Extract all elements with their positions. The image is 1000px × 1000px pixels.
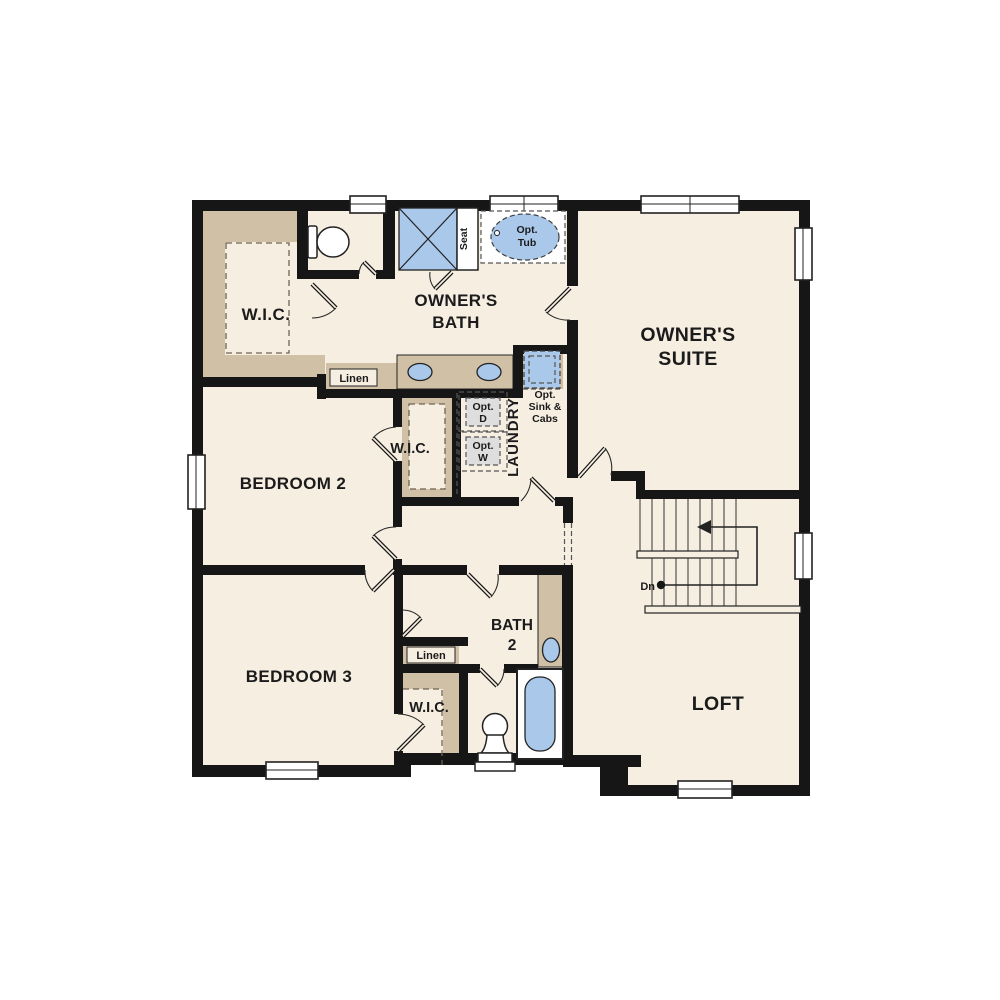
- window: [350, 196, 386, 213]
- room-label-bedroom3-wic: W.I.C.: [409, 700, 448, 716]
- label-opt-tub-1: Opt.: [517, 224, 538, 236]
- label-stairs-down: Dn: [640, 581, 655, 593]
- stair-bottom-edge: [645, 606, 801, 613]
- window: [795, 228, 812, 280]
- floor-plan-canvas: W.I.C. OWNER'S BATH Seat Opt. Tub OWNER'…: [0, 0, 1000, 1000]
- bath2-sink-icon: [543, 638, 560, 662]
- floor-plan-page: W.I.C. OWNER'S BATH Seat Opt. Tub OWNER'…: [0, 0, 1000, 1000]
- room-label-owners-suite-2: SUITE: [658, 348, 717, 370]
- window: [641, 196, 739, 213]
- room-label-owners-wic: W.I.C.: [242, 305, 291, 324]
- room-label-bedroom2: BEDROOM 2: [240, 474, 347, 493]
- room-label-bedroom3: BEDROOM 3: [246, 667, 353, 686]
- room-label-bedroom2-wic: W.I.C.: [390, 441, 429, 457]
- label-opt-dryer-2: D: [479, 413, 487, 425]
- room-label-owners-suite-1: OWNER'S: [640, 324, 735, 346]
- bathtub-icon: [517, 669, 563, 759]
- label-opt-dryer-1: Opt.: [473, 401, 494, 413]
- window: [266, 762, 318, 779]
- room-label-owners-bath-1: OWNER'S: [414, 291, 497, 310]
- room-label-loft: LOFT: [692, 693, 745, 715]
- window: [188, 455, 205, 509]
- label-opt-sink-3: Cabs: [532, 413, 558, 425]
- window: [795, 533, 812, 579]
- room-label-bath2-1: BATH: [491, 617, 533, 634]
- room-label-bath2-2: 2: [508, 637, 517, 654]
- label-opt-tub-2: Tub: [518, 237, 536, 249]
- label-opt-washer-2: W: [478, 452, 488, 464]
- label-opt-sink-2: Sink &: [529, 401, 562, 413]
- toilet-icon: [308, 226, 349, 258]
- label-seat: Seat: [458, 227, 470, 250]
- label-opt-washer-1: Opt.: [473, 440, 494, 452]
- label-linen-lower: Linen: [416, 650, 446, 662]
- room-label-laundry: LAUNDRY: [505, 397, 522, 477]
- window: [678, 781, 732, 798]
- label-opt-sink-1: Opt.: [535, 389, 556, 401]
- room-label-owners-bath-2: BATH: [432, 313, 480, 332]
- optional-sink-cabs-icon: [523, 351, 563, 389]
- stair-landing: [637, 551, 738, 558]
- label-linen-upper: Linen: [339, 373, 369, 385]
